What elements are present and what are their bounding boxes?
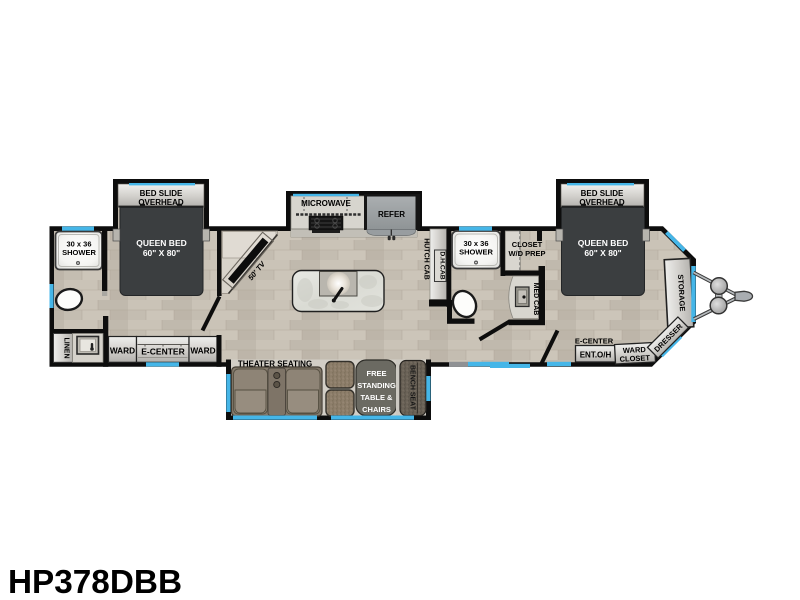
svg-text:QUEEN BED: QUEEN BED [136,238,187,248]
svg-text:QUEEN BED: QUEEN BED [578,238,629,248]
svg-text:LINEN: LINEN [63,338,70,359]
svg-text:MED CAB: MED CAB [532,283,539,316]
svg-text:E-CENTER: E-CENTER [575,337,614,346]
svg-text:STANDING: STANDING [357,381,396,390]
svg-text:CHAIRS: CHAIRS [362,405,391,414]
svg-text:MICROWAVE: MICROWAVE [301,199,351,208]
svg-text:SHOWER: SHOWER [62,248,96,257]
svg-text:ENT.O/H: ENT.O/H [580,351,612,360]
svg-text:TABLE &: TABLE & [361,393,394,402]
svg-text:CLOSET: CLOSET [512,240,543,249]
svg-text:HP378DBB: HP378DBB [8,563,182,600]
svg-text:BENCH SEAT: BENCH SEAT [409,365,416,411]
svg-text:REFER: REFER [378,210,405,219]
svg-text:60" X 80": 60" X 80" [584,248,621,258]
svg-text:D.H.CAB: D.H.CAB [438,251,445,279]
svg-text:BED SLIDE: BED SLIDE [581,189,624,198]
svg-text:60" X 80": 60" X 80" [143,248,180,258]
svg-text:HUTCH CAB: HUTCH CAB [423,238,430,280]
svg-text:W/D PREP: W/D PREP [508,249,545,258]
svg-text:FREE: FREE [366,369,386,378]
svg-text:WARD: WARD [190,346,215,356]
svg-text:WARD: WARD [110,346,135,356]
svg-text:THEATER SEATING: THEATER SEATING [238,359,312,368]
svg-text:BED SLIDE: BED SLIDE [140,189,183,198]
svg-text:CLOSET: CLOSET [619,353,650,364]
svg-text:E-CENTER: E-CENTER [141,347,184,357]
svg-text:SHOWER: SHOWER [459,248,493,257]
